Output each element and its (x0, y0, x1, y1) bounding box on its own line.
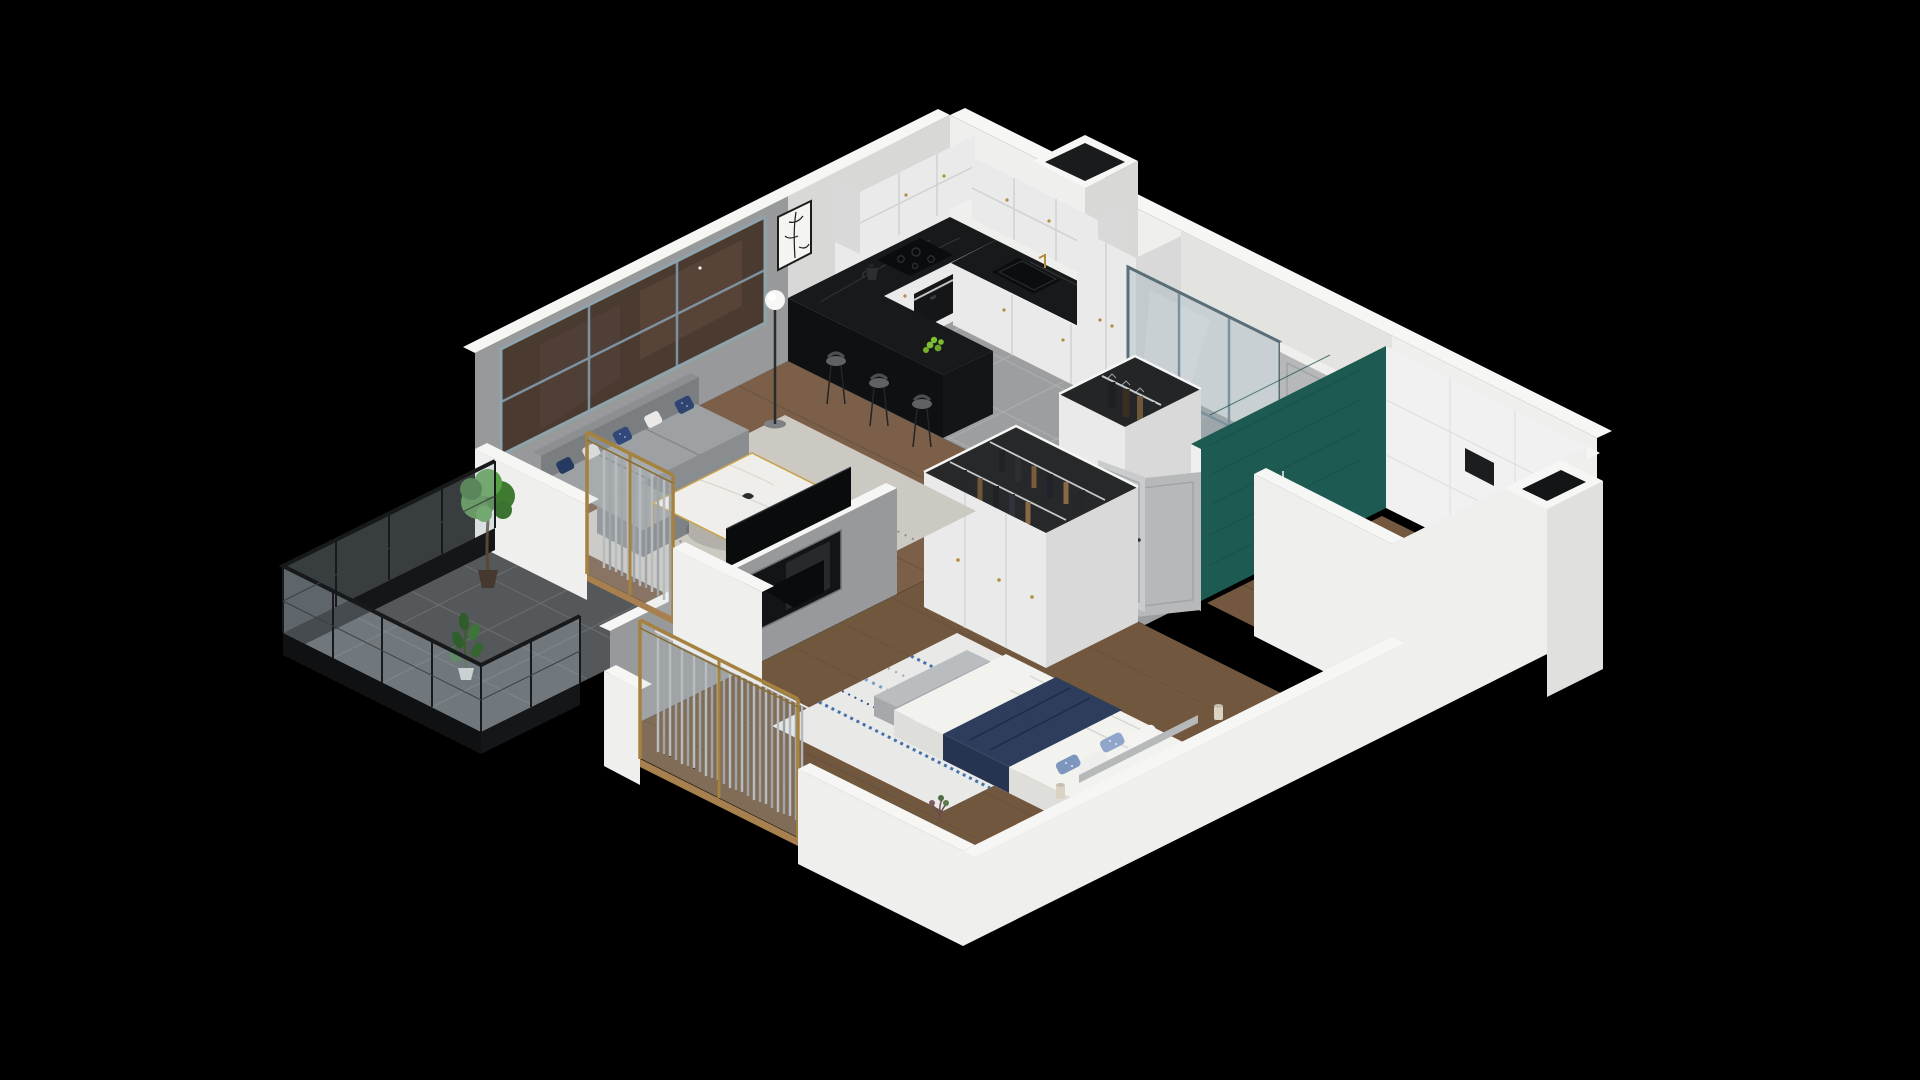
table-lamp (1214, 704, 1223, 720)
table-lamp (1056, 783, 1065, 799)
render-canvas: 3D isometric apartment floor plan render (0, 0, 1920, 1080)
apartment-isometric-render: 3D isometric apartment floor plan render (0, 0, 1920, 1080)
